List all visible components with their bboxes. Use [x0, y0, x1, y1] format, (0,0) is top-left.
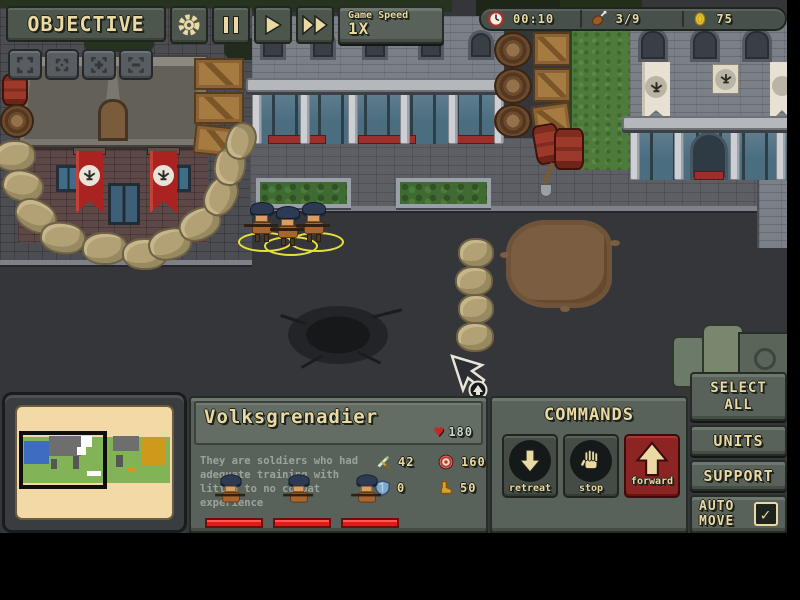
right-building — [630, 16, 787, 180]
sandbag — [455, 266, 493, 296]
retreat-arrow-icon — [517, 448, 543, 474]
awning-ledge — [246, 78, 510, 92]
top-toolbar: OBJECTIVE Game Speed 1X — [6, 6, 444, 44]
wood-barrel — [0, 104, 34, 138]
food-cell: 3/9 — [580, 10, 683, 28]
volksgrenadier-unit[interactable] — [300, 202, 328, 242]
game-screen: OBJECTIVE Game Speed 1X — [0, 0, 800, 600]
pause-button[interactable] — [212, 6, 250, 44]
game-speed-value: 1X — [348, 19, 434, 38]
faction-emblem-icon — [772, 76, 787, 96]
timer-value: 00:10 — [513, 12, 554, 26]
attack-sword-icon — [375, 454, 391, 470]
center-camera-button[interactable] — [45, 49, 79, 80]
retreat-label: retreat — [509, 483, 551, 494]
faction-emblem-icon — [645, 76, 667, 98]
unit-info-panel: Volksgrenadier ♥ 180 They are soldiers w… — [189, 396, 488, 533]
squad-member-card[interactable] — [203, 476, 265, 532]
rifle — [296, 224, 330, 227]
minimap-paper[interactable] — [15, 405, 174, 520]
storefront — [630, 128, 787, 180]
emblem-plaque — [712, 64, 739, 94]
camera-controls — [8, 49, 153, 80]
expand-icon — [15, 55, 35, 75]
forward-label: forward — [631, 476, 673, 487]
dirt-patch — [506, 220, 612, 308]
dirt-speck — [560, 306, 570, 312]
dirt-speck — [610, 240, 620, 246]
sandbag — [456, 322, 494, 352]
speed-stat: 50 — [438, 480, 476, 495]
fullscreen-button[interactable] — [8, 49, 42, 80]
storefront — [252, 90, 504, 144]
minimap-panel[interactable] — [2, 392, 187, 533]
health-bar — [273, 518, 331, 528]
faction-emblem-icon — [79, 165, 100, 186]
door — [108, 183, 140, 225]
red-barrel — [554, 128, 584, 170]
crate — [533, 68, 571, 102]
hedge-planter — [396, 178, 491, 208]
game-speed-display: Game Speed 1X — [338, 6, 444, 44]
unit-health-value: 180 — [448, 425, 473, 439]
crack — [372, 308, 402, 318]
faction-emblem-icon — [153, 165, 174, 186]
health-bar — [205, 518, 263, 528]
forward-arrow-icon — [633, 438, 671, 480]
commands-title: COMMANDS — [492, 405, 686, 425]
wood-barrel — [494, 32, 532, 68]
unit-header: Volksgrenadier ♥ 180 — [194, 401, 483, 445]
door-mat — [268, 135, 326, 144]
rifle — [244, 224, 278, 227]
crate — [533, 32, 571, 66]
minimap-block — [127, 467, 136, 471]
letterbox-right — [787, 0, 800, 600]
play-icon — [264, 15, 282, 35]
timer-cell: 00:10 — [481, 10, 580, 28]
speed-value: 50 — [460, 481, 476, 495]
objective-button[interactable]: OBJECTIVE — [6, 6, 166, 42]
units-button[interactable]: UNITS — [690, 425, 787, 456]
forward-button[interactable]: forward — [624, 434, 680, 498]
unit-name: Volksgrenadier — [204, 406, 378, 428]
door-mat — [694, 171, 724, 180]
sandbag — [0, 140, 36, 172]
helmet — [276, 206, 300, 219]
game-viewport[interactable]: OBJECTIVE Game Speed 1X — [0, 0, 787, 533]
sandbag — [458, 294, 494, 324]
commands-panel: COMMANDS retreat — [490, 396, 688, 533]
range-target-icon — [438, 454, 454, 470]
health-bar — [341, 518, 399, 528]
attic-window — [98, 99, 128, 141]
sandbag — [82, 232, 128, 265]
play-button[interactable] — [254, 6, 292, 44]
checkmark-icon: ✓ — [761, 505, 772, 524]
auto-move-button[interactable]: AUTO MOVE ✓ — [690, 495, 787, 533]
dirt-speck — [500, 252, 509, 258]
focus-icon — [52, 55, 72, 75]
settings-button[interactable] — [170, 6, 208, 44]
stop-button[interactable]: stop — [563, 434, 619, 498]
zoom-in-button[interactable] — [82, 49, 116, 80]
awning-ledge — [622, 116, 787, 130]
support-button[interactable]: SUPPORT — [690, 460, 787, 491]
arched-window — [690, 28, 720, 62]
resource-bar: 00:10 3/9 75 — [479, 7, 787, 31]
coins-cell: 75 — [682, 11, 785, 27]
helmet — [302, 202, 326, 215]
minimap-block — [116, 455, 123, 467]
arched-window — [468, 30, 494, 60]
gear-icon — [177, 13, 201, 37]
auto-move-checkbox[interactable]: ✓ — [754, 502, 778, 526]
speed-boot-icon — [438, 480, 453, 495]
shovel-blade — [540, 184, 552, 197]
wood-barrel — [494, 104, 532, 138]
minimap-viewport-rect[interactable] — [19, 431, 107, 489]
rifle — [270, 228, 304, 231]
crate — [194, 58, 244, 90]
plus-icon — [89, 55, 109, 75]
zoom-out-button[interactable] — [119, 49, 153, 80]
range-value: 160 — [461, 455, 486, 469]
minimap-block — [113, 436, 139, 451]
helmet — [250, 202, 274, 215]
arched-window — [742, 28, 772, 62]
squad-member-card[interactable] — [339, 476, 401, 532]
coins-value: 75 — [716, 12, 732, 26]
stop-label: stop — [579, 483, 603, 494]
wood-barrel — [494, 68, 532, 104]
crate — [194, 92, 244, 124]
range-stat: 160 — [438, 454, 486, 470]
minimap-block — [141, 438, 166, 465]
clock-icon — [487, 10, 505, 28]
attack-value: 42 — [398, 455, 414, 469]
fast-forward-button[interactable] — [296, 6, 334, 44]
auto-move-label: AUTO MOVE — [699, 499, 747, 529]
coin-icon — [692, 11, 708, 27]
food-value: 3/9 — [616, 12, 641, 26]
letterbox-bottom — [0, 533, 800, 600]
pause-icon — [223, 16, 229, 34]
select-all-button[interactable]: SELECT ALL — [690, 372, 787, 421]
attack-stat: 42 — [375, 454, 414, 470]
unit-health: ♥ 180 — [434, 423, 473, 441]
meat-icon — [590, 10, 608, 28]
minus-icon — [126, 55, 146, 75]
heart-icon: ♥ — [434, 423, 443, 441]
arched-window — [638, 28, 668, 62]
volksgrenadier-unit[interactable] — [248, 202, 276, 242]
stop-hand-icon — [578, 448, 604, 474]
squad-member-card[interactable] — [271, 476, 333, 532]
retreat-button[interactable]: retreat — [502, 434, 558, 498]
fast-forward-icon — [302, 15, 328, 35]
sandbag — [458, 238, 494, 268]
